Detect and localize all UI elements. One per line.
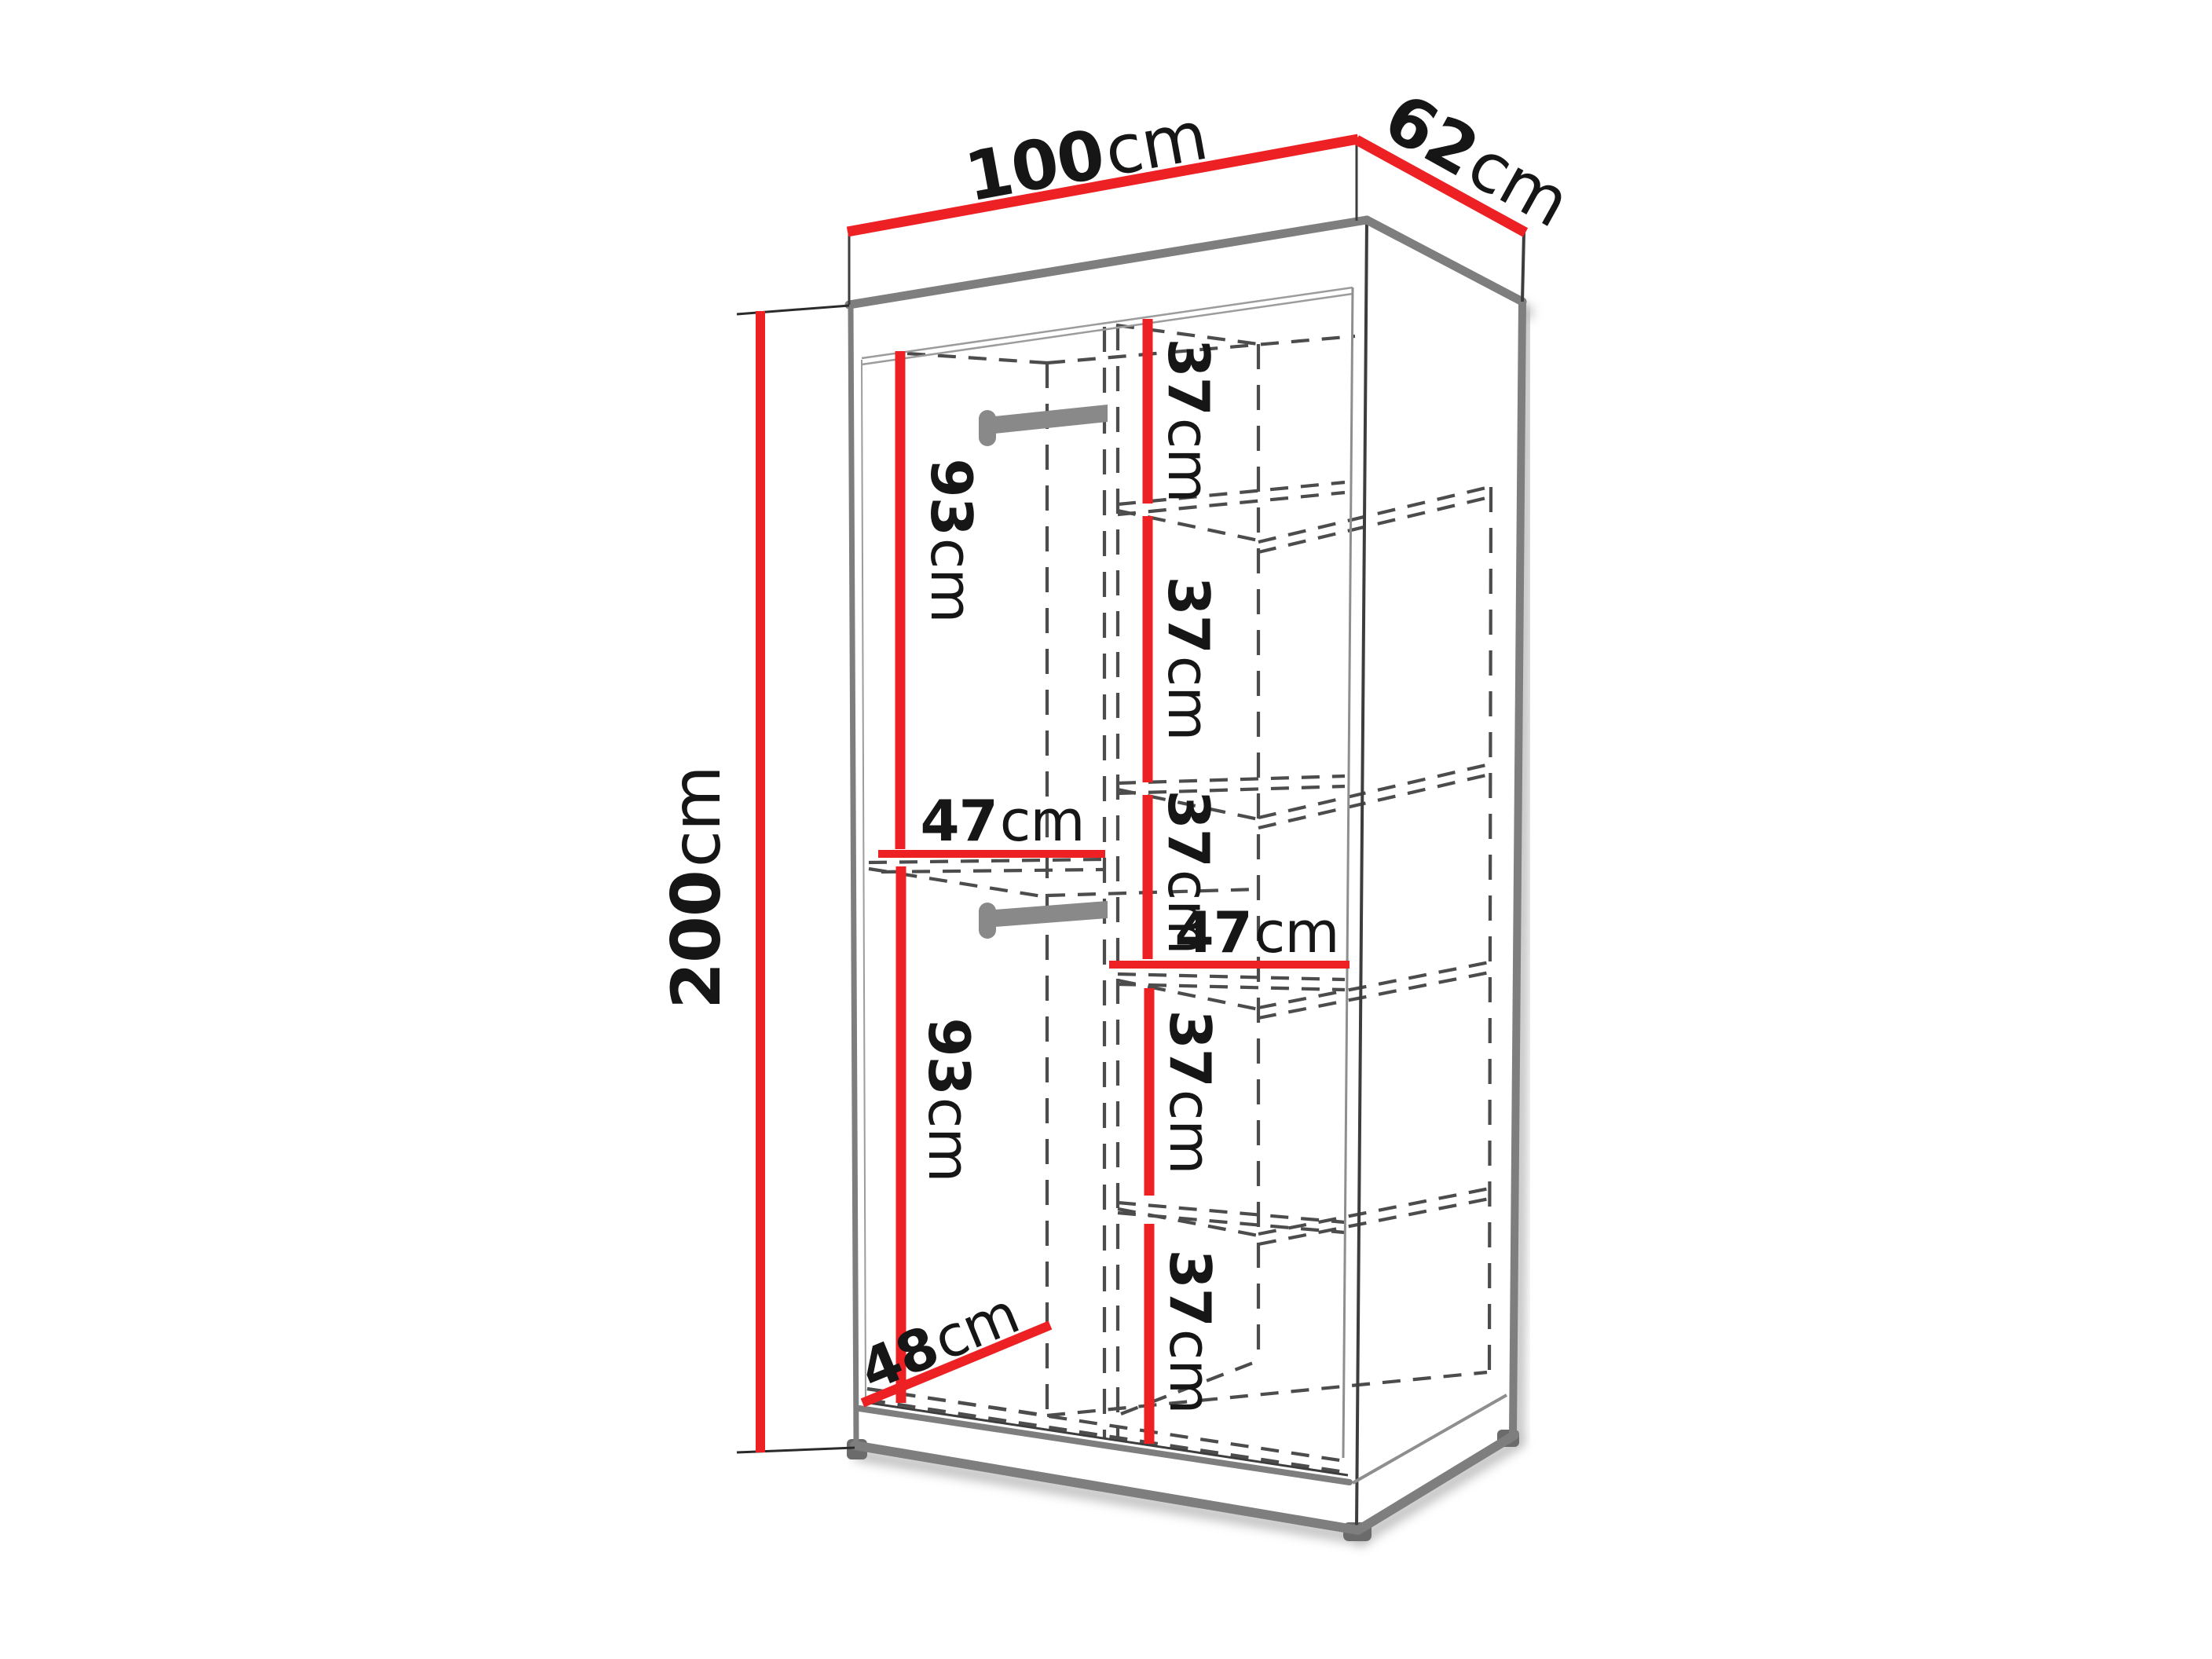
dim-height-label: 200cm — [657, 766, 736, 1009]
dim-left-shelf-width-label: 47cm — [921, 788, 1085, 854]
rod-upper-end-cap — [979, 410, 996, 446]
dim-height-tick-top — [737, 306, 849, 314]
dim-lower-hanging-label: 93cm — [916, 1018, 982, 1182]
top-panel-rear-edge — [1522, 233, 1524, 302]
cabinet-side-panel — [1357, 220, 1522, 1529]
rod-lower-end-cap — [979, 903, 996, 939]
dim-shelf-spacing-label-5: 37cm — [1157, 1250, 1223, 1414]
dim-upper-hanging-label: 93cm — [918, 459, 984, 623]
diagram-canvas: 100cm 62cm 200cm 93cm 93cm 47cm 47cm 48c… — [0, 0, 2212, 1659]
dim-height-tick-bottom — [737, 1448, 855, 1452]
dim-shelf-spacing-label-1: 37cm — [1155, 339, 1221, 503]
dim-shelf-spacing-label-3: 37cm — [1155, 790, 1221, 954]
wardrobe-dimension-diagram: 100cm 62cm 200cm 93cm 93cm 47cm 47cm 48c… — [0, 0, 2212, 1659]
dim-shelf-spacing-label-4: 37cm — [1157, 1010, 1223, 1174]
dim-shelf-spacing-label-2: 37cm — [1155, 577, 1221, 741]
